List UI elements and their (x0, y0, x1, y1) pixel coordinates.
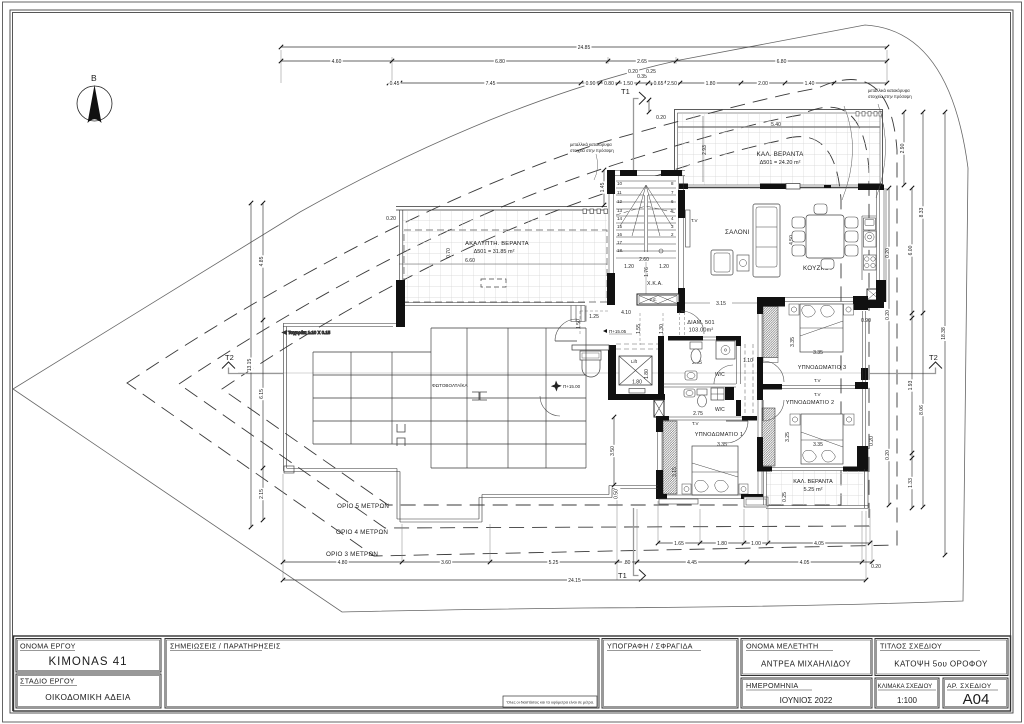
svg-text:6.80: 6.80 (495, 59, 505, 65)
svg-text:0.50: 0.50 (614, 489, 620, 499)
svg-text:15: 15 (617, 224, 623, 229)
svg-text:1.00: 1.00 (751, 541, 761, 547)
svg-text:0.45: 0.45 (390, 81, 400, 87)
svg-text:0.20: 0.20 (885, 248, 891, 258)
svg-text:3.25: 3.25 (785, 432, 791, 442)
svg-text:18.38: 18.38 (941, 327, 947, 340)
svg-text:στοιχεία στην πρόσοψη: στοιχεία στην πρόσοψη (570, 148, 614, 153)
svg-text:ΚΑΛ. ΒΕΡΑΝΤΑ: ΚΑΛ. ΒΕΡΑΝΤΑ (793, 479, 833, 485)
svg-text:Δ501 = 24.20 m²: Δ501 = 24.20 m² (760, 160, 801, 166)
svg-text:’Ολες οι διαστάσεις και τα υψό: ’Ολες οι διαστάσεις και τα υψόμετρα είνα… (506, 700, 594, 705)
svg-text:0.90: 0.90 (861, 318, 871, 324)
svg-text:6.00: 6.00 (908, 245, 914, 255)
svg-text:1.76: 1.76 (644, 267, 650, 277)
svg-text:Δ501 = 31.85 m²: Δ501 = 31.85 m² (474, 249, 515, 255)
svg-text:ΟΙΚΟΔΟΜΙΚΗ ΑΔΕΙΑ: ΟΙΚΟΔΟΜΙΚΗ ΑΔΕΙΑ (45, 692, 131, 702)
svg-text:0.25: 0.25 (646, 69, 656, 75)
svg-text:T1: T1 (618, 571, 627, 580)
svg-text:2.50: 2.50 (667, 81, 677, 87)
svg-text:5.25 m²: 5.25 m² (804, 487, 823, 493)
svg-text:ΣΤΑΔΙΟ ΕΡΓΟΥ: ΣΤΑΔΙΟ ΕΡΓΟΥ (20, 677, 75, 686)
svg-text:ΑΡ. ΣΧΕΔΙΟΥ: ΑΡ. ΣΧΕΔΙΟΥ (947, 683, 992, 690)
svg-text:ΟΡΙΟ 4 ΜΕΤΡΩΝ: ΟΡΙΟ 4 ΜΕΤΡΩΝ (336, 529, 388, 536)
svg-text:2.00: 2.00 (758, 81, 768, 87)
svg-text:3.60: 3.60 (441, 560, 451, 566)
svg-text:ΥΠΝΟΔΩΜΑΤΙΟ 1: ΥΠΝΟΔΩΜΑΤΙΟ 1 (695, 432, 744, 438)
svg-text:ΦΩΤΟΒΟΛΤΑΪΚΑ: ΦΩΤΟΒΟΛΤΑΪΚΑ (432, 382, 469, 388)
svg-text:24.15: 24.15 (568, 578, 581, 584)
svg-text:ΚΛΙΜΑΚΑ ΣΧΕΔΙΟΥ: ΚΛΙΜΑΚΑ ΣΧΕΔΙΟΥ (878, 683, 933, 690)
svg-text:6.15: 6.15 (259, 389, 265, 399)
svg-text:13: 13 (617, 208, 623, 213)
svg-text:5.40: 5.40 (771, 122, 781, 128)
svg-text:μεταλλικά κατακόρυφα: μεταλλικά κατακόρυφα (868, 88, 910, 93)
svg-text:1.80: 1.80 (632, 380, 642, 386)
svg-text:ΤΙΤΛΟΣ ΣΧΕΔΙΟΥ: ΤΙΤΛΟΣ ΣΧΕΔΙΟΥ (880, 642, 942, 651)
svg-text:T.V: T.V (814, 392, 821, 397)
svg-text:ΙΟΥΝΙΟΣ 2022: ΙΟΥΝΙΟΣ 2022 (780, 696, 833, 705)
svg-text:ΥΠΝΟΔΩΜΑΤΙΟ 2: ΥΠΝΟΔΩΜΑΤΙΟ 2 (786, 400, 835, 406)
svg-text:B: B (91, 73, 97, 83)
svg-text:1.80: 1.80 (717, 541, 727, 547)
svg-text:8.33: 8.33 (919, 207, 925, 217)
svg-text:T.V: T.V (691, 218, 698, 223)
svg-text:ΕΙΣ.: ΕΙΣ. (650, 297, 657, 302)
svg-text:Χ.Κ.Α.: Χ.Κ.Α. (647, 281, 663, 287)
svg-text:ΚΑΤΟΨΗ 5ου ΟΡΟΦΟΥ: ΚΑΤΟΨΗ 5ου ΟΡΟΦΟΥ (894, 660, 988, 669)
svg-text:1.45: 1.45 (600, 182, 606, 192)
svg-text:1.30: 1.30 (659, 324, 665, 334)
svg-text:0.20: 0.20 (656, 115, 666, 121)
svg-text:4.85: 4.85 (259, 256, 265, 266)
svg-text:1.20: 1.20 (624, 264, 634, 270)
svg-text:ΥΠΝΟΔΩΜΑΤΙΟ 3: ΥΠΝΟΔΩΜΑΤΙΟ 3 (798, 365, 847, 371)
svg-text:0.20: 0.20 (885, 310, 891, 320)
svg-text:4.10: 4.10 (621, 310, 631, 316)
svg-text:2.15: 2.15 (259, 489, 265, 499)
svg-text:1.33: 1.33 (908, 478, 914, 488)
svg-text:103.00m²: 103.00m² (689, 328, 714, 334)
svg-text:T2: T2 (225, 353, 234, 362)
svg-text:1.25: 1.25 (589, 314, 599, 320)
svg-text:1.50: 1.50 (576, 319, 582, 329)
svg-text:ΥΠΟΓΡΑΦΗ / ΣΦΡΑΓΙΔΑ: ΥΠΟΓΡΑΦΗ / ΣΦΡΑΓΙΔΑ (607, 642, 693, 651)
svg-text:0.25: 0.25 (782, 492, 788, 502)
svg-text:KIMONAS 41: KIMONAS 41 (48, 656, 127, 668)
svg-text:8.06: 8.06 (919, 405, 925, 415)
svg-text:13.15: 13.15 (247, 359, 253, 372)
svg-text:1.93: 1.93 (908, 380, 914, 390)
svg-text:ΟΝΟΜΑ ΜΕΛΕΤΗΤΗ: ΟΝΟΜΑ ΜΕΛΕΤΗΤΗ (746, 642, 819, 651)
svg-text:στοιχεία στην πρόσοψη: στοιχεία στην πρόσοψη (868, 94, 912, 99)
svg-text:11: 11 (617, 190, 622, 195)
svg-text:4.05: 4.05 (814, 541, 824, 547)
svg-text:3.50: 3.50 (610, 446, 616, 456)
svg-text:ΑΝΤΡΕΑ ΜΙΧΑΗΛΙΔΟΥ: ΑΝΤΡΕΑ ΜΙΧΑΗΛΙΔΟΥ (761, 660, 851, 669)
svg-text:2.90: 2.90 (900, 143, 906, 153)
svg-text:1.40: 1.40 (805, 81, 815, 87)
svg-text:24.85: 24.85 (578, 45, 591, 51)
svg-text:0.20: 0.20 (871, 564, 881, 570)
svg-text:4.80: 4.80 (338, 560, 348, 566)
svg-text:7.45: 7.45 (486, 81, 496, 87)
svg-text:5.25: 5.25 (549, 560, 559, 566)
svg-text:1.10: 1.10 (743, 358, 753, 364)
svg-text:4.05: 4.05 (800, 560, 810, 566)
svg-text:T1: T1 (621, 87, 630, 96)
svg-text:3.35: 3.35 (790, 337, 796, 347)
svg-text:T.V: T.V (692, 421, 699, 426)
svg-text:.80: .80 (624, 560, 631, 566)
svg-text:ΟΡΙΟ 3 ΜΕΤΡΩΝ: ΟΡΙΟ 3 ΜΕΤΡΩΝ (326, 551, 378, 558)
svg-text:ΑΚΑΛΥΠΤΗ. ΒΕΡΑΝΤΑ: ΑΚΑΛΥΠΤΗ. ΒΕΡΑΝΤΑ (465, 241, 529, 247)
svg-text:T2: T2 (929, 353, 938, 362)
svg-text:1:100: 1:100 (897, 696, 918, 705)
svg-text:1.65: 1.65 (674, 541, 684, 547)
svg-text:4.60: 4.60 (332, 59, 342, 65)
svg-text:12: 12 (617, 199, 623, 204)
svg-text:ΗΜΕΡΟΜΗΝΙΑ: ΗΜΕΡΟΜΗΝΙΑ (746, 681, 799, 690)
svg-text:16: 16 (617, 232, 623, 237)
svg-text:ΣΗΜΕΙΩΣΕΙΣ / ΠΑΡΑΤΗΡΗΣΕΙΣ: ΣΗΜΕΙΩΣΕΙΣ / ΠΑΡΑΤΗΡΗΣΕΙΣ (170, 642, 281, 651)
svg-text:3.35: 3.35 (813, 442, 823, 448)
svg-text:2.60: 2.60 (639, 257, 649, 263)
svg-text:2.75: 2.75 (693, 411, 703, 417)
svg-text:4.45: 4.45 (687, 560, 697, 566)
svg-text:ΟΡΙΟ 5 ΜΕΤΡΩΝ: ΟΡΙΟ 5 ΜΕΤΡΩΝ (337, 503, 389, 510)
svg-text:6.80: 6.80 (777, 59, 787, 65)
svg-text:17: 17 (617, 240, 623, 245)
svg-text:10: 10 (617, 181, 623, 186)
svg-text:W/C: W/C (715, 407, 725, 413)
svg-text:0.20: 0.20 (869, 436, 875, 446)
svg-text:1.80: 1.80 (644, 369, 650, 379)
svg-text:T.V: T.V (814, 378, 821, 383)
svg-text:0.70: 0.70 (446, 248, 452, 258)
svg-text:0.20: 0.20 (885, 450, 891, 460)
svg-text:1.55: 1.55 (636, 324, 642, 334)
svg-text:3.35: 3.35 (813, 350, 823, 356)
svg-text:1.50: 1.50 (623, 81, 633, 87)
svg-text:1.20: 1.20 (659, 264, 669, 270)
svg-text:3.15: 3.15 (716, 301, 726, 307)
svg-text:0.90: 0.90 (586, 81, 596, 87)
svg-text:0.65: 0.65 (654, 81, 664, 87)
svg-text:Π+15.00: Π+15.00 (563, 384, 581, 389)
svg-text:Τοιχοράκι 1.10 Χ 0.15: Τοιχοράκι 1.10 Χ 0.15 (288, 330, 331, 335)
svg-text:0.80: 0.80 (604, 81, 614, 87)
svg-text:A04: A04 (963, 691, 990, 708)
svg-text:2.65: 2.65 (637, 59, 647, 65)
svg-text:ΚΑΛ. ΒΕΡΑΝΤΑ: ΚΑΛ. ΒΕΡΑΝΤΑ (757, 151, 805, 158)
svg-text:18.: 18. (617, 248, 623, 253)
svg-text:14: 14 (617, 216, 623, 221)
svg-text:ΟΝΟΜΑ ΕΡΓΟΥ: ΟΝΟΜΑ ΕΡΓΟΥ (20, 642, 76, 651)
svg-text:0.20: 0.20 (386, 216, 396, 222)
svg-text:Π+15.05: Π+15.05 (609, 329, 627, 334)
svg-text:6.60: 6.60 (465, 258, 475, 264)
svg-text:μεταλλικά κατακόρυφα: μεταλλικά κατακόρυφα (570, 142, 612, 147)
svg-text:1.80: 1.80 (706, 81, 716, 87)
svg-text:ΣΑΛΟΝΙ: ΣΑΛΟΝΙ (725, 229, 750, 236)
svg-text:Lift: Lift (631, 359, 638, 364)
